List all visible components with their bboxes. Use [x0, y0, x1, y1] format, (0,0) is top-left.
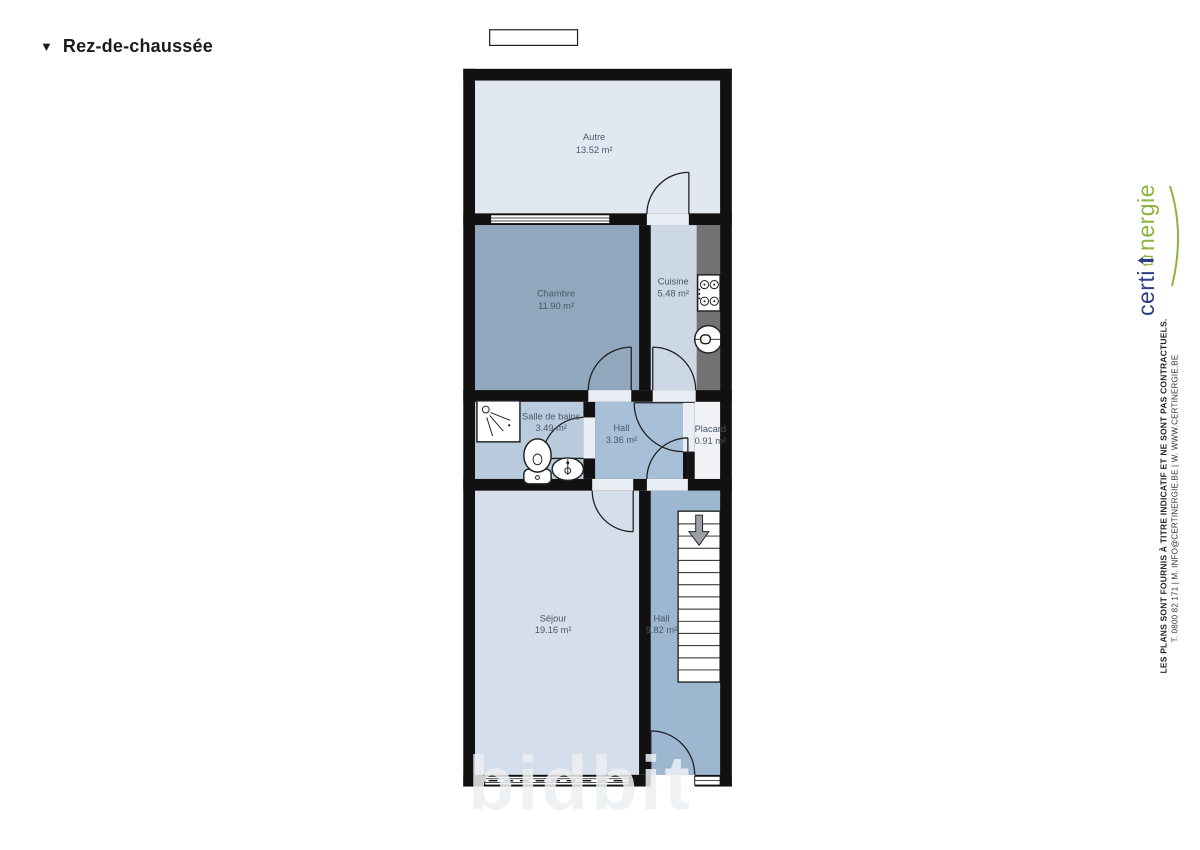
- area-hall: 3.36 m²: [606, 435, 637, 445]
- toilet-icon: [524, 439, 551, 484]
- logo-swoosh-arc: [1168, 184, 1184, 288]
- staircase: [678, 511, 720, 682]
- area-salle-de-bains: 3.49 m²: [535, 423, 566, 433]
- disclaimer-line1: LES PLANS SONT FOURNIS À TITRE INDICATIF…: [1159, 324, 1169, 674]
- disclaimer: LES PLANS SONT FOURNIS À TITRE INDICATIF…: [1159, 324, 1180, 674]
- label-hall-escalier: Hall: [654, 614, 670, 624]
- label-autre: Autre: [583, 132, 605, 142]
- area-autre: 13.52 m²: [576, 145, 613, 155]
- shower-icon: [477, 401, 520, 442]
- area-placard: 0.91 m²: [695, 436, 726, 446]
- logo-house-icon: [1128, 253, 1164, 268]
- floor-title: Rez-de-chaussée: [63, 36, 213, 57]
- area-sejour: 19.16 m²: [535, 625, 572, 635]
- label-sejour: Séjour: [540, 614, 567, 624]
- floorplan-drawing: Autre 13.52 m² Chambre 11.90 m² Cuisine …: [440, 20, 760, 850]
- kitchen-sink-icon: [695, 326, 722, 353]
- disclaimer-contact: T. 0800 82 171 | M. INFO@CERTINERGIE.BE …: [1171, 324, 1180, 674]
- logo-text-certi: certi: [1133, 270, 1160, 316]
- watermark: bidbit: [468, 740, 748, 827]
- bathroom-sink-icon: [552, 458, 583, 480]
- window-autre-chambre: [491, 215, 610, 224]
- stove-icon: [698, 275, 720, 311]
- area-cuisine: 5.48 m²: [658, 288, 689, 298]
- label-cuisine: Cuisine: [658, 277, 689, 287]
- label-chambre: Chambre: [537, 288, 575, 298]
- label-salle-de-bains: Salle de bains: [522, 411, 581, 421]
- label-placard: Placard: [695, 424, 726, 434]
- collapse-triangle-icon: ▼: [40, 40, 53, 53]
- legend-box: [490, 30, 578, 46]
- area-hall-escalier: 9.82 m²: [646, 625, 677, 635]
- area-chambre: 11.90 m²: [538, 301, 574, 311]
- label-hall: Hall: [613, 423, 629, 433]
- floor-section-header[interactable]: ▼ Rez-de-chaussée: [40, 36, 213, 57]
- certinergie-logo: certi nergie: [1128, 184, 1186, 316]
- logo-text-nergie: nergie: [1133, 184, 1160, 251]
